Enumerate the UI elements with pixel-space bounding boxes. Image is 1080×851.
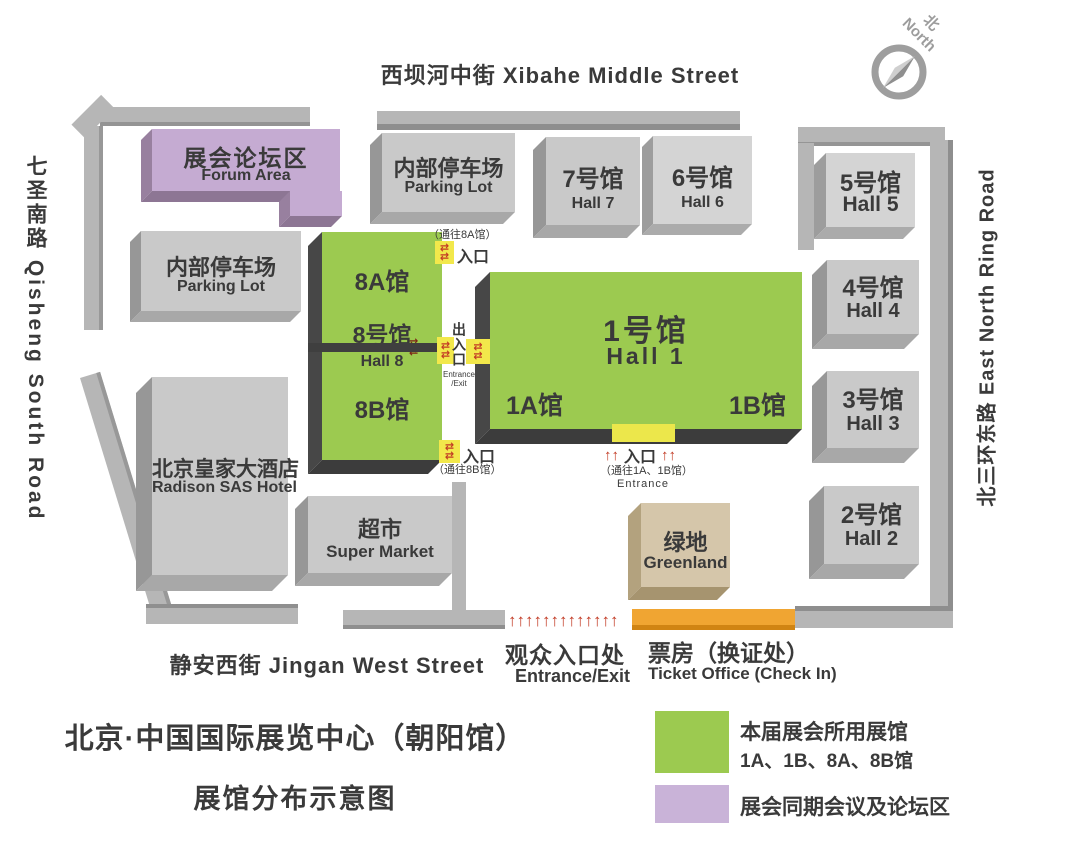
legend-swatch-purple xyxy=(655,785,729,823)
building-forum-area: 展会论坛区 Forum Area xyxy=(152,129,340,191)
ticket-office-label-en: Ticket Office (Check In) xyxy=(648,664,837,684)
road-corridor-south xyxy=(452,482,466,612)
road-southwest-foot xyxy=(146,604,298,624)
hall6-label-zh: 6号馆 xyxy=(653,158,752,193)
visitor-entrance-label-en: Entrance/Exit xyxy=(515,666,630,687)
map-title: 北京·中国国际展览中心（朝阳馆） 展馆分布示意图 xyxy=(30,715,560,816)
building-hall4: 4号馆 Hall 4 xyxy=(827,260,919,334)
gate-1-arrows-left-icon: ↑↑ xyxy=(604,447,619,464)
ticket-office-bar xyxy=(632,609,795,630)
hall6-label-en: Hall 6 xyxy=(653,194,752,212)
road-top-center xyxy=(377,111,740,130)
gate-8a-marker-icon: ⇄⇄ xyxy=(435,241,454,264)
building-hall8-complex: 8A馆 8号馆 Hall 8 8B馆 xyxy=(322,232,442,460)
hall7-label-en: Hall 7 xyxy=(546,195,640,213)
greenland-label-en: Greenland xyxy=(641,553,730,573)
gate-mid-label-en: Entrance/Exit xyxy=(436,370,482,388)
road-right-stub xyxy=(798,143,814,250)
street-bottom-label: 静安西街 Jingan West Street xyxy=(157,648,497,680)
hall7-label-zh: 7号馆 xyxy=(546,159,640,194)
hall8a-label-zh: 8A馆 xyxy=(322,262,442,297)
gate-mid-right-marker-icon: ⇄⇄ xyxy=(466,339,490,364)
building-forum-area-step xyxy=(290,191,342,216)
road-right-bottom xyxy=(795,606,953,628)
legend-used-halls-line2: 1A、1B、8A、8B馆 xyxy=(740,746,913,773)
map-title-line2: 展馆分布示意图 xyxy=(30,777,560,816)
visitor-entrance-arrows-icon: ↑↑↑↑↑↑↑↑↑↑↑↑↑ xyxy=(508,611,619,631)
legend-used-halls-line1: 本届展会所用展馆 xyxy=(740,716,908,746)
street-left-label: 七圣南路 Qisheng South Road xyxy=(20,155,50,575)
gate-1-label-en: Entrance xyxy=(617,478,669,490)
hall1-south-gate-strip xyxy=(612,424,675,442)
building-hotel: 北京皇家大酒店 Radison SAS Hotel xyxy=(152,377,288,575)
road-left-vertical xyxy=(84,126,103,330)
hotel-label-en: Radison SAS Hotel xyxy=(152,479,288,497)
building-hall6: 6号馆 Hall 6 xyxy=(653,136,752,224)
gate-1-arrows-right-icon: ↑↑ xyxy=(661,447,676,464)
hall1a-label: 1A馆 xyxy=(506,386,563,422)
building-hall7: 7号馆 Hall 7 xyxy=(546,137,640,225)
hall8b-label-zh: 8B馆 xyxy=(322,390,442,425)
gate-mid-label: 出入口 xyxy=(449,322,469,367)
hall3-label-zh: 3号馆 xyxy=(827,380,919,415)
road-right-vertical xyxy=(930,140,953,608)
building-parking-north: 内部停车场 Parking Lot xyxy=(382,133,515,212)
forum-label-en: Forum Area xyxy=(152,167,340,185)
building-hall5: 5号馆 Hall 5 xyxy=(823,150,918,230)
hall3-label-en: Hall 3 xyxy=(827,413,919,436)
building-parking-west: 内部停车场 Parking Lot xyxy=(141,231,301,311)
hall8-label-en: Hall 8 xyxy=(322,353,442,371)
gate-8a-note: （通往8A馆） xyxy=(428,226,496,242)
road-right-top xyxy=(798,127,945,146)
building-hall1: 1号馆 Hall 1 1A馆 1B馆 xyxy=(490,272,802,429)
supermarket-label-zh: 超市 xyxy=(308,512,452,544)
ticket-office-label-zh: 票房（换证处） xyxy=(648,634,809,668)
map-title-line1: 北京·中国国际展览中心（朝阳馆） xyxy=(30,715,560,757)
building-supermarket: 超市 Super Market xyxy=(308,496,452,573)
hall4-label-en: Hall 4 xyxy=(827,300,919,323)
gate-8a-label: 入口 xyxy=(457,243,489,267)
hall5-label-en: Hall 5 xyxy=(826,193,915,217)
building-hall3: 3号馆 Hall 3 xyxy=(827,371,919,448)
parking-north-label-en: Parking Lot xyxy=(382,179,515,197)
hall8-divider xyxy=(308,343,442,352)
hall2-label-zh: 2号馆 xyxy=(824,495,919,530)
hall1-label-en: Hall 1 xyxy=(490,343,802,370)
parking-west-label-en: Parking Lot xyxy=(141,278,301,296)
gate-8b-marker-icon: ⇄⇄ xyxy=(439,440,460,463)
supermarket-label-en: Super Market xyxy=(308,542,452,562)
road-topleft-horizontal xyxy=(100,107,310,126)
hall4-label-zh: 4号馆 xyxy=(827,268,919,303)
legend-swatch-green xyxy=(655,711,729,773)
hall2-label-en: Hall 2 xyxy=(824,528,919,551)
visitor-entrance-label-zh: 观众入口处 xyxy=(505,636,625,670)
road-courtyard-south xyxy=(343,610,505,629)
map-canvas: 西坝河中街 Xibahe Middle Street 七圣南路 Qisheng … xyxy=(0,0,1080,851)
building-greenland: 绿地 Greenland xyxy=(641,503,730,587)
gate-1-note: （通往1A、1B馆） xyxy=(600,462,693,478)
gate-8b-note: （通往8B馆） xyxy=(433,461,501,477)
legend-forum-label: 展会同期会议及论坛区 xyxy=(740,791,950,821)
street-right-label: 北三环东路 East North Ring Road xyxy=(971,133,1000,543)
building-hall2: 2号馆 Hall 2 xyxy=(824,486,919,564)
street-top-label: 西坝河中街 Xibahe Middle Street xyxy=(310,58,810,90)
hall1b-label: 1B馆 xyxy=(729,386,786,422)
